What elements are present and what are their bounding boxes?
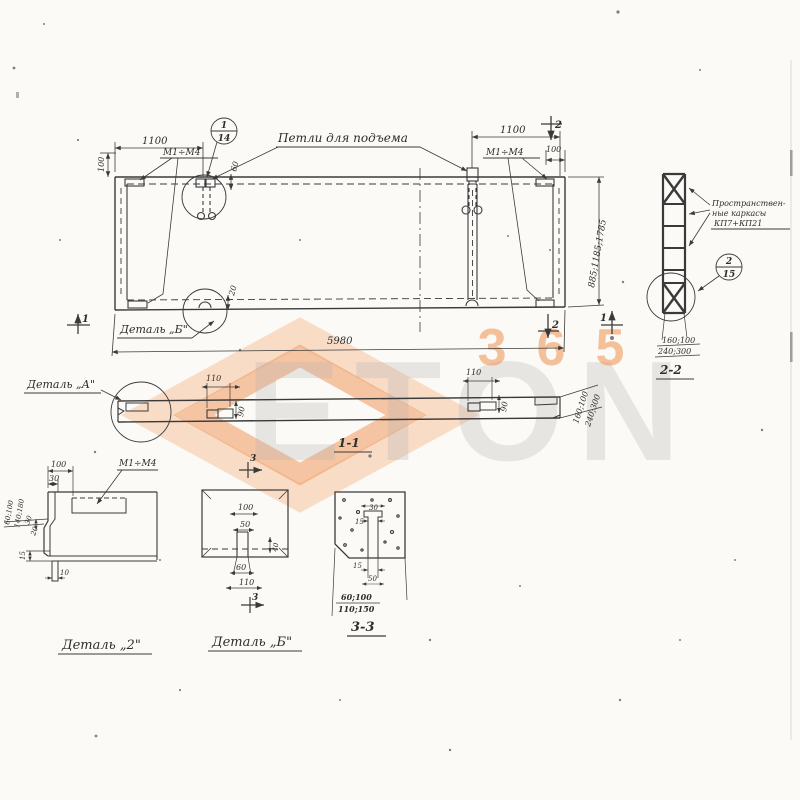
dim-110-150: 110;150 — [338, 604, 375, 614]
callout-detail-number: 2 — [725, 257, 732, 267]
drawing-canvas: ETON 365 — [0, 0, 800, 800]
section-mark-1-left: 1 — [67, 314, 90, 334]
detail-2-label: Деталь „2" — [61, 638, 141, 653]
section-mark-label: 1 — [600, 313, 607, 324]
dim-60-100: 60;100 — [341, 592, 372, 602]
lifting-loop-bottom-right — [466, 300, 478, 306]
dim-widths: 885;1185;1785 — [587, 219, 609, 289]
dim-plate1-90: 90 — [236, 406, 247, 418]
dim-100: 100 — [51, 460, 66, 469]
dim-240-300: 240;300 — [657, 347, 691, 356]
lifting-loop-bottom-left — [183, 289, 227, 333]
detail-2-view: 100 30 М1÷М4 60;100 140;180 30 20 15 10 … — [3, 459, 158, 654]
dim-step-20: 20 — [29, 525, 40, 538]
lifting-loop-top-right — [462, 168, 482, 214]
dim-100: 100 — [238, 503, 253, 512]
section-3-3-label: 3-3 — [351, 620, 375, 635]
section-mark-label: 2 — [551, 320, 559, 331]
embed-mark-right: М1÷М4 — [485, 148, 524, 158]
dim-160-100: 160;100 — [662, 336, 695, 345]
dim-60-loop: 60 — [229, 160, 240, 172]
dim-100-right: 100 — [546, 145, 561, 154]
dim-40: 40 — [271, 542, 281, 554]
section-mark-3-bottom: 3 — [241, 593, 264, 613]
dim-step-30: 30 — [23, 514, 34, 526]
section-mark-label: 2 — [554, 120, 562, 131]
section-2-2-label: 2-2 — [659, 363, 682, 377]
dim-50: 50 — [240, 520, 250, 529]
section-mark-label: 3 — [250, 454, 256, 464]
section-3-3-view: 30 15 15 50 60;100 110;150 3-3 — [332, 492, 407, 636]
dim-110: 110 — [239, 578, 254, 587]
spatial-frames-note-line3: КП7+КП21 — [713, 219, 762, 228]
embed-mark-left: М1÷М4 — [162, 148, 201, 158]
detail-a-reference: Деталь „А" — [26, 378, 95, 391]
dim-30: 30 — [49, 474, 59, 483]
dim-30: 30 — [369, 504, 378, 512]
spatial-frames-note-line2: ные каркасы — [712, 209, 766, 218]
section-mark-2-top: 2 — [541, 116, 562, 140]
section-mark-label: 3 — [252, 593, 258, 603]
dim-100-left: 100 — [97, 157, 106, 172]
dim-plate2-110: 110 — [466, 368, 481, 377]
dim-1100-right: 1100 — [500, 125, 526, 136]
watermark-number-text: 365 — [478, 319, 655, 377]
dim-15: 15 — [19, 551, 27, 560]
dim-1100-left: 1100 — [142, 136, 168, 147]
dim-plate2-90: 90 — [499, 401, 510, 413]
lifting-loop-top-left — [182, 175, 226, 220]
embed-mark: М1÷М4 — [118, 459, 157, 469]
spatial-frames-note-line1: Пространствен- — [711, 199, 786, 208]
dim-10: 10 — [60, 569, 69, 577]
scanned-drawing-sheet: ETON 365 — [0, 0, 800, 800]
dim-20-loop: 20 — [227, 284, 239, 297]
section-mark-label: 1 — [82, 314, 89, 325]
callout-sheet-number: 14 — [218, 134, 231, 144]
section-1-1-label: 1-1 — [338, 436, 360, 450]
dim-15-top: 15 — [355, 518, 364, 526]
callout-2-15: 2 15 — [698, 254, 742, 291]
section-2-2-view: Пространствен- ные каркасы КП7+КП21 2 15… — [647, 174, 790, 379]
dim-50: 50 — [368, 575, 377, 583]
detail-b-reference: Деталь „Б" — [119, 323, 188, 336]
callout-sheet-number: 15 — [723, 270, 736, 280]
frame-cross-braces — [663, 174, 685, 313]
lifting-loops-label: Петли для подъема — [277, 131, 408, 145]
embedded-plates — [125, 179, 554, 308]
dim-5980: 5980 — [327, 336, 353, 347]
detail-b-label: Деталь „Б" — [211, 635, 292, 650]
dim-15-bottom: 15 — [353, 562, 362, 570]
callout-detail-number: 1 — [221, 121, 227, 131]
dim-60: 60 — [236, 563, 246, 572]
dim-plate1-110: 110 — [206, 374, 221, 383]
